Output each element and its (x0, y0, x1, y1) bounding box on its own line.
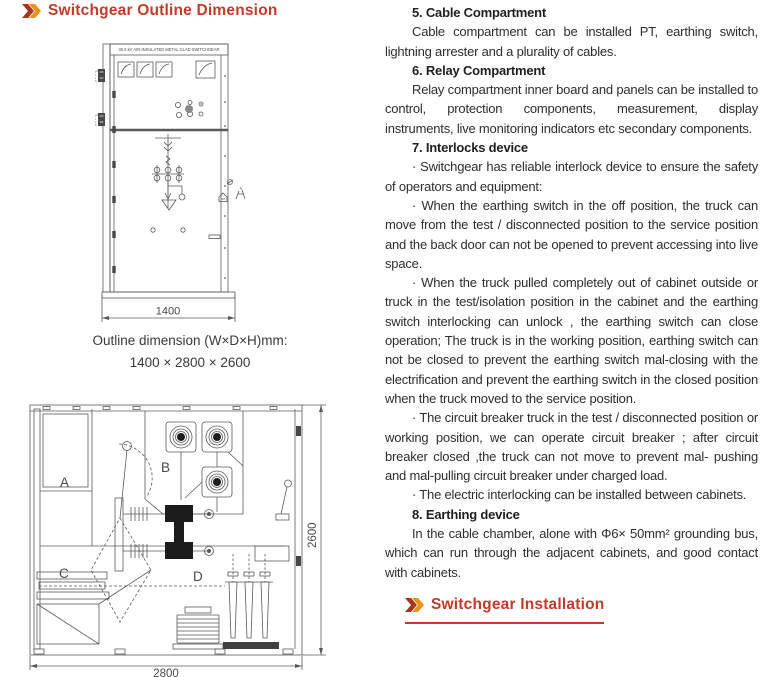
meter-gauges (118, 61, 215, 78)
section-paragraph: · The electric interlocking can be insta… (385, 485, 758, 504)
right-column: 5. Cable Compartment Cable compartment c… (385, 3, 758, 624)
section-heading-earthing: 8. Earthing device (385, 505, 758, 524)
next-section-title: Switchgear Installation (405, 595, 604, 624)
compartment-d-label: D (193, 569, 203, 584)
section-heading-interlocks: 7. Interlocks device (385, 138, 758, 157)
page-title: Switchgear Outline Dimension (22, 2, 278, 20)
open-indicator-icon (236, 188, 245, 200)
busbar-compartment (145, 411, 243, 514)
depth-dimension-label: 2800 (153, 668, 179, 677)
rear-compartment-parts (255, 426, 301, 566)
mimic-diagram (152, 134, 185, 210)
side-hinges (95, 69, 105, 126)
next-section-title-text: Switchgear Installation (431, 595, 604, 614)
outline-dimension-caption: Outline dimension (W×D×H)mm: 1400 × 2800… (40, 330, 340, 374)
nameplate-label: 40.5 kV AIR-INSULATED METAL CLAD SWITCHG… (119, 47, 220, 52)
caption-line1: Outline dimension (W×D×H)mm: (40, 330, 340, 352)
section-view-drawing: A B C D 2600 2800 (15, 386, 375, 677)
compartment-a-label: A (60, 475, 69, 490)
section-paragraph: · When the truck pulled completely out o… (385, 273, 758, 408)
section-paragraph: In the cable chamber, alone with Φ6× 50m… (385, 524, 758, 582)
section-paragraph: · Switchgear has reliable interlock devi… (385, 157, 758, 196)
caption-line2: 1400 × 2800 × 2600 (40, 352, 340, 374)
section-paragraph: Relay compartment inner board and panels… (385, 80, 758, 138)
width-dimension-label: 1400 (156, 306, 180, 318)
section-paragraph: · The circuit breaker truck in the test … (385, 408, 758, 485)
section-heading-cable: 5. Cable Compartment (385, 3, 758, 22)
cable-terminations (223, 554, 279, 649)
front-view-drawing: 40.5 kV AIR-INSULATED METAL CLAD SWITCHG… (95, 36, 245, 328)
page-title-text: Switchgear Outline Dimension (48, 2, 278, 20)
breaker-truck (115, 498, 214, 571)
catalog-page: Switchgear Outline Dimension 40.5 kV AIR… (0, 0, 760, 677)
double-chevron-icon (405, 598, 424, 612)
section-paragraph: · When the earthing switch in the off po… (385, 196, 758, 273)
section-heading-relay: 6. Relay Compartment (385, 61, 758, 80)
busbar-bushings (166, 422, 243, 512)
compartment-b-label: B (161, 460, 170, 475)
support-insulator (173, 607, 223, 649)
indicator-lamps (175, 101, 203, 118)
depth-dimension: 2800 (30, 656, 302, 677)
section-paragraph: Cable compartment can be installed PT, e… (385, 22, 758, 61)
cabinet-base (102, 292, 235, 298)
width-dimension: 1400 (102, 295, 235, 322)
height-dimension: 2600 (302, 405, 326, 655)
compartment-c-label: C (59, 566, 69, 581)
height-dimension-label: 2600 (307, 522, 319, 548)
double-chevron-icon (22, 4, 41, 18)
interlock-linkage (91, 442, 152, 623)
